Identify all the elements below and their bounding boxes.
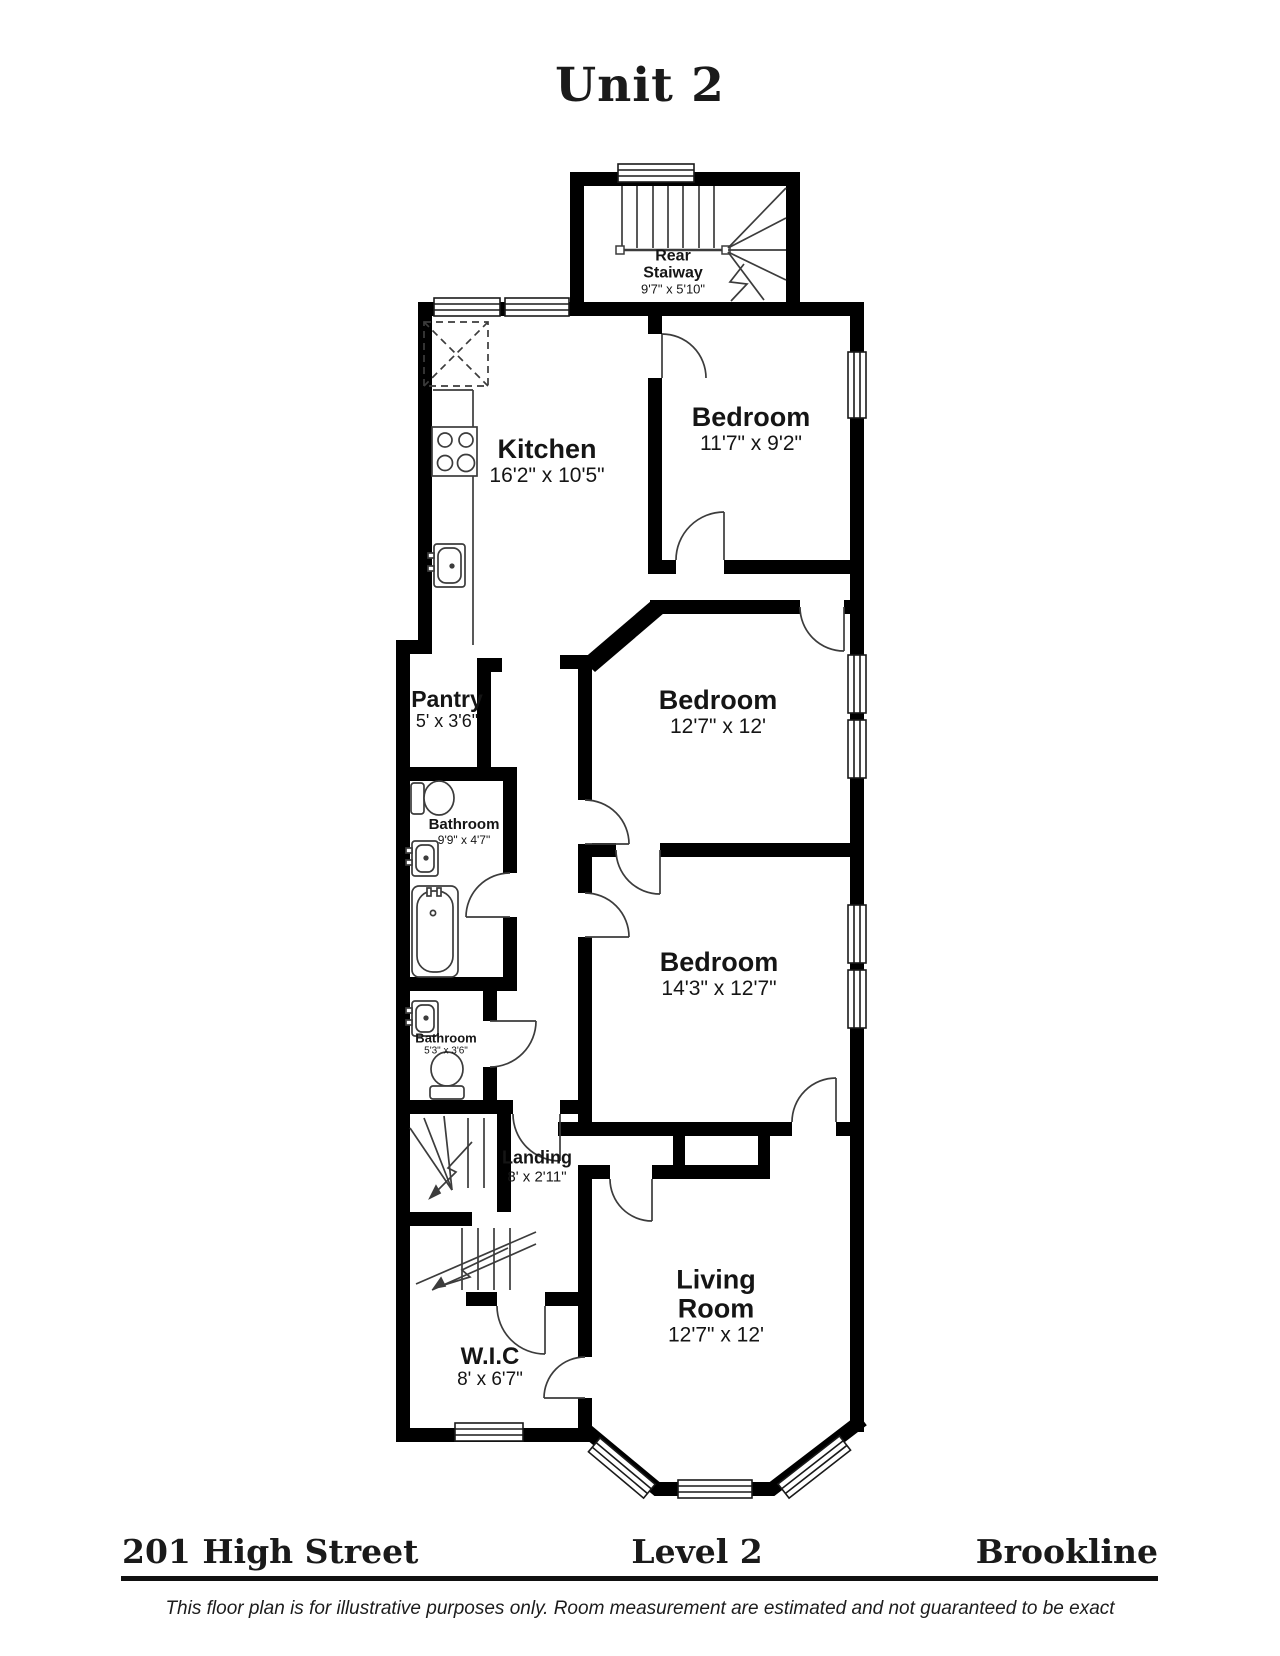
room-name: Bathroom <box>415 1030 476 1045</box>
room-label-wic: W.I.C 8' x 6'7" <box>457 1318 523 1416</box>
kitchen-sink-icon <box>428 544 465 587</box>
room-label-bedroom-2: Bedroom 12'7" x 12' <box>659 657 778 767</box>
footer-level: Level 2 <box>631 1532 762 1571</box>
disclaimer-text: This floor plan is for illustrative purp… <box>0 1598 1280 1620</box>
room-dims: 11'7" x 9'2" <box>692 433 811 455</box>
room-dims: 5'3" x 3'6" <box>415 1046 476 1057</box>
room-label-bedroom-1: Bedroom 11'7" x 9'2" <box>692 374 811 484</box>
footer-divider <box>121 1576 1158 1581</box>
room-dims: 12'7" x 12' <box>659 716 778 738</box>
room-name: W.I.C <box>461 1343 520 1370</box>
room-label-bathroom-2: Bathroom 5'3" x 3'6" <box>415 1017 476 1070</box>
room-name: Bathroom <box>429 816 500 833</box>
room-label-pantry: Pantry 5' x 3'6" <box>411 662 483 756</box>
room-label-bathroom-1: Bathroom 9'9" x 4'7" <box>429 801 500 863</box>
refrigerator-icon <box>424 322 488 386</box>
room-label-rear-stairway: Rear Staiway 9'7" x 5'10" <box>641 230 705 313</box>
room-name: Kitchen <box>497 434 596 464</box>
bathtub-icon <box>412 886 458 977</box>
room-name: Living Room <box>676 1264 756 1323</box>
footer: 201 High Street Level 2 Brookline <box>122 1532 1158 1571</box>
room-dims: 8' x 2'11" <box>502 1169 572 1185</box>
room-dims: 9'9" x 4'7" <box>429 834 500 847</box>
room-label-living-room: Living Room 12'7" x 12' <box>668 1237 764 1376</box>
floor-plan-page: { "title": "Unit 2", "rooms": [ {"id":"r… <box>0 0 1280 1656</box>
room-dims: 16'2" x 10'5" <box>489 465 604 487</box>
room-label-landing: Landing 8' x 2'11" <box>502 1130 572 1205</box>
room-name: Bedroom <box>659 685 778 715</box>
room-dims: 8' x 6'7" <box>457 1370 523 1390</box>
room-name: Landing <box>502 1148 572 1168</box>
room-label-bedroom-3: Bedroom 14'3" x 12'7" <box>660 919 779 1029</box>
room-dims: 12'7" x 12' <box>668 1324 764 1346</box>
room-dims: 9'7" x 5'10" <box>641 283 705 297</box>
stove-icon <box>432 427 477 476</box>
room-dims: 5' x 3'6" <box>411 712 483 731</box>
room-dims: 14'3" x 12'7" <box>660 978 779 1000</box>
room-name: Bedroom <box>660 947 779 977</box>
room-name: Rear Staiway <box>643 247 703 281</box>
room-name: Pantry <box>411 686 483 712</box>
room-name: Bedroom <box>692 402 811 432</box>
footer-city: Brookline <box>976 1532 1158 1571</box>
room-label-kitchen: Kitchen 16'2" x 10'5" <box>489 406 604 516</box>
footer-address: 201 High Street <box>122 1532 418 1571</box>
